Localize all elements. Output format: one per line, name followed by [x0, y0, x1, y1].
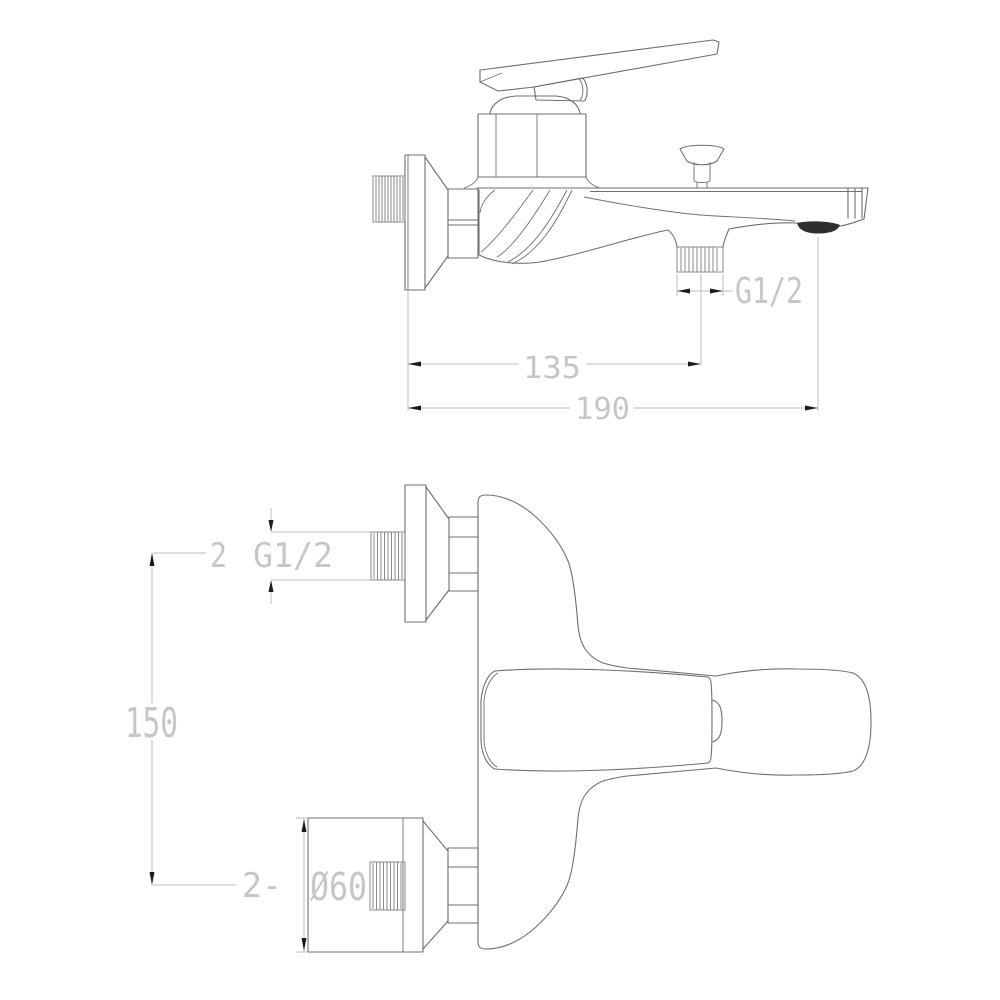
- g12-arrow-right: [710, 289, 723, 294]
- handle-plan: [481, 669, 722, 771]
- handle-pivot-cap: [712, 700, 722, 742]
- g12-plan-arrow-bottom: [269, 580, 274, 592]
- lower-escutcheon-cone: [423, 821, 448, 949]
- upper-nut-facets: [449, 537, 478, 573]
- g12-arrow-left: [677, 289, 690, 294]
- shower-thread-body: [677, 247, 723, 272]
- side-view: G1/2 135 190: [373, 40, 868, 427]
- faucet-technical-drawing: G1/2 135 190: [0, 0, 1000, 1000]
- dim-190-arrow-right: [805, 406, 818, 411]
- spout-tip: [848, 188, 868, 219]
- handle-outline: [481, 669, 712, 771]
- upper-escutcheon-cone: [426, 487, 449, 620]
- lower-pipe-thread: [370, 862, 405, 910]
- label-135: 135: [523, 351, 581, 386]
- lower-nut-facets: [448, 867, 478, 905]
- handle-neck: [534, 78, 587, 101]
- shower-outlet-thread: [677, 247, 723, 272]
- handle-inner-arc: [484, 673, 498, 767]
- label-qty-bottom: 2-: [242, 866, 282, 906]
- dim-135-arrow-left: [408, 362, 421, 367]
- dim-150-arrow-top: [150, 553, 155, 566]
- handle-neck-face: [579, 79, 583, 100]
- dim-135-arrow-right: [688, 362, 701, 367]
- label-qty-top: 2: [210, 536, 227, 576]
- plan-view: 2 G1/2 150 2- Ø60: [125, 485, 871, 952]
- body-sweep-lines: [480, 190, 572, 264]
- technical-drawing-page: G1/2 135 190: [0, 0, 1000, 1000]
- label-g12-plan: G1/2: [253, 536, 333, 576]
- mounting-nut-side: [448, 189, 478, 258]
- upper-connection: [371, 485, 478, 622]
- lower-pipe-thread-lines: [373, 863, 401, 910]
- escutcheon-cone: [425, 157, 448, 288]
- label-150: 150: [125, 699, 178, 747]
- d60-arrow-bottom: [302, 938, 307, 951]
- dim-150-arrow-bottom: [150, 872, 155, 885]
- upper-nut: [449, 517, 478, 591]
- diverter-cap: [680, 145, 724, 165]
- diverter-knob: [680, 145, 724, 188]
- housing-base-flares: [464, 177, 600, 188]
- lower-nut: [448, 848, 478, 923]
- wall-escutcheon-side: [405, 155, 448, 290]
- upper-escutcheon: [405, 485, 426, 622]
- handle-lever: [480, 40, 719, 91]
- spout-back-edge: [584, 197, 795, 221]
- label-g12-side: G1/2: [735, 271, 803, 312]
- handle-lever-edge: [480, 73, 502, 82]
- body-silhouette: [478, 495, 871, 949]
- d60-ext-stubs: [296, 818, 308, 952]
- supply-pipe-thread-side: [373, 176, 405, 222]
- cartridge-dome: [490, 96, 580, 113]
- cartridge-housing-lines: [496, 114, 537, 177]
- shower-thread-lines: [681, 248, 717, 272]
- label-190: 190: [575, 392, 630, 427]
- plan-view-dimensions: 2 G1/2 150 2- Ø60: [125, 508, 371, 952]
- body-underside: [479, 190, 677, 263]
- cartridge-housing: [478, 114, 586, 177]
- d60-arrow-top: [302, 819, 307, 832]
- g12-plan-arrow-top: [269, 520, 274, 532]
- nut-facets: [448, 220, 478, 225]
- label-d60: Ø60: [310, 865, 367, 909]
- nut-body: [448, 189, 478, 258]
- aerator-outlet: [797, 221, 840, 233]
- spout-underside: [723, 219, 864, 247]
- dim-190-arrow-left: [408, 406, 421, 411]
- pipe-thread-lines: [376, 177, 403, 222]
- upper-pipe-thread-lines: [374, 533, 402, 580]
- g12-extension-lines: [677, 274, 723, 296]
- diverter-stem: [694, 162, 710, 188]
- side-view-dimensions: G1/2 135 190: [408, 237, 818, 427]
